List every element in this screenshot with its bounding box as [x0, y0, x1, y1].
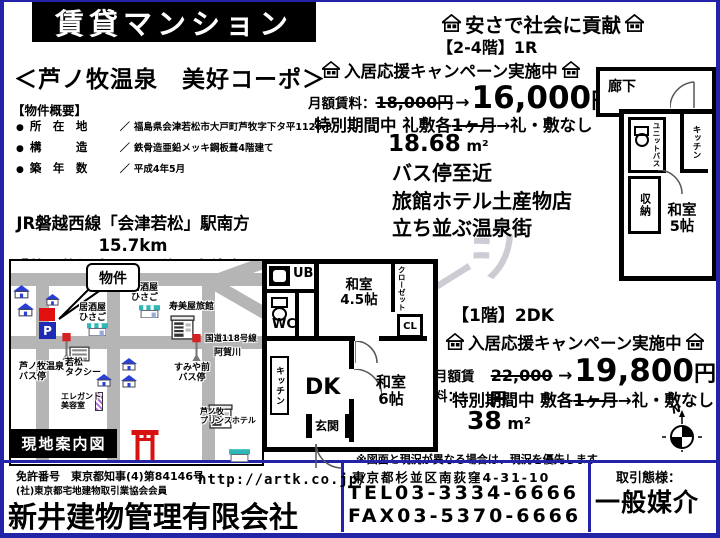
overview-value: 平成4年5月: [134, 161, 185, 175]
area-value: 18.68: [388, 131, 461, 157]
unit-bath-label: ユニットバス: [651, 122, 662, 167]
bus-stop-icon: [61, 333, 72, 360]
storage-label: 収納: [637, 193, 653, 217]
parking-sign: P: [39, 322, 56, 339]
rental-flyer: ージ 賃貸マンション ＜芦ノ牧温泉 美好コーポ＞ 【物件概要】 ● 所 在 地 …: [0, 0, 720, 538]
map-label-route118: 国道118号線: [205, 335, 257, 344]
wall: [379, 336, 427, 341]
company-name: 新井建物管理有限会社: [8, 494, 298, 536]
wall: [267, 289, 314, 293]
overview-label: 構 造: [30, 139, 116, 155]
property-callout: 物件: [86, 263, 140, 292]
house-icon: [446, 333, 464, 351]
unit-2dk-floor: 【1階】2DK: [452, 301, 554, 326]
fax-number: FAX03-5370-6666: [348, 505, 581, 527]
room-unit-bath: ユニットバス: [628, 117, 666, 173]
map-label-busstop-ashinomaki: 芦ノ牧温泉 バス停: [19, 363, 64, 383]
house-icon: [121, 375, 137, 388]
location-map: 物件 P 居酒屋 ひさご 居酒屋 ひさご 寿美屋旅館 国道118号線 阿賀川 す…: [9, 259, 264, 466]
arrow: →: [455, 93, 469, 113]
rent-new: 19,800: [574, 353, 694, 389]
map-caption: 現地案内図: [11, 429, 117, 458]
shop-icon: [229, 449, 250, 462]
overview-value: 福島県会津若松市大戸町芦牧字下タ平1126-3: [134, 119, 333, 133]
property-name: ＜芦ノ牧温泉 美好コーポ＞: [14, 60, 326, 94]
house-icon: [121, 358, 137, 371]
bullet-icon: ●: [16, 165, 24, 175]
map-label-ryokan: 寿美屋旅館: [169, 303, 214, 313]
map-label-river: 阿賀川: [214, 349, 241, 359]
overview-value: 鉄骨造亜鉛メッキ鋼板葺4階建て: [134, 140, 274, 154]
area-unit: m²: [507, 414, 531, 433]
wall: [391, 262, 395, 312]
overview-row-built: ● 築 年 数 ／ 平成4年5月: [16, 160, 185, 176]
door-arc: [658, 170, 684, 196]
campaign-text: 入居応援キャンペーン実施中: [468, 330, 682, 354]
wall: [267, 336, 355, 341]
access-line1: JR磐越西線「会津若松」駅南方15.7km: [4, 213, 262, 257]
overview-separator: ／: [120, 160, 130, 175]
area-1r: 18.68 m²: [388, 131, 489, 157]
bullet-icon: ●: [16, 144, 24, 154]
shop-icon: [139, 305, 160, 318]
campaign-2dk-row: 入居応援キャンペーン実施中: [446, 330, 704, 354]
room-genkan: 玄関: [314, 420, 340, 433]
overview-label: 所 在 地: [30, 118, 116, 134]
overview-separator: ／: [120, 118, 130, 133]
house-icon: [442, 14, 461, 33]
phone-number: TEL03-3334-6666: [348, 482, 579, 504]
rent-label: 月額賃料：: [308, 92, 376, 112]
kitchen-label: キッチン: [690, 125, 702, 159]
torii-gate-icon: [131, 430, 159, 460]
rent-old: 18,000円: [376, 89, 454, 113]
room-wc: WC: [272, 318, 296, 332]
house-icon: [322, 61, 340, 79]
room-washitsu-5: 和室 5帖: [658, 204, 706, 236]
campaign-text: 入居応援キャンペーン実施中: [344, 58, 558, 82]
bullet-icon: ●: [16, 123, 24, 133]
wall: [345, 414, 351, 438]
license-number: 免許番号 東京都知事(4)第84146号: [16, 468, 204, 484]
shop-icon: [87, 323, 108, 336]
room-corridor: 廊下: [608, 80, 636, 95]
door-arc: [355, 341, 379, 365]
room-ub: UB: [293, 267, 313, 281]
company-url: http://artk.co.jp/: [198, 472, 368, 488]
house-icon: [686, 333, 704, 351]
door-arc: [314, 444, 344, 470]
map-label-busstop-sumiya: すみや前 バス停: [174, 364, 210, 384]
bus-stop-icon: [191, 334, 202, 361]
wall: [295, 293, 299, 340]
wall: [314, 262, 319, 340]
map-label-salon: エレガント 美容室: [61, 393, 101, 411]
toilet-icon: [635, 133, 649, 147]
map-label-hotel: 芦ノ牧 プリンスホテル: [200, 408, 256, 426]
house-icon: [625, 14, 644, 33]
room-kitchen: キッチン: [270, 356, 289, 415]
footer-vertical-divider: [588, 460, 591, 532]
map-label-izakaya: 居酒屋 ひさご: [79, 304, 106, 324]
feature-line: 立ち並ぶ温泉街: [392, 215, 572, 243]
room-kitchen-1r: キッチン: [680, 114, 708, 173]
kitchen-label: キッチン: [273, 366, 286, 406]
floorplan-1r: 廊下 ユニットバス キッチン 収納 和室 5帖: [562, 64, 720, 282]
map-label-taxi: 若松 タクシー: [65, 359, 101, 379]
feature-line: バス停至近: [392, 160, 572, 188]
compass-north-icon: N: [662, 402, 702, 452]
footer-vertical-divider: [341, 460, 344, 532]
special-struck: 1ヶ月: [573, 391, 617, 410]
area-2dk: 38 m²: [467, 406, 531, 435]
room-cl: CL: [397, 314, 423, 338]
overview-row-location: ● 所 在 地 ／ 福島県会津若松市大戸町芦牧字下タ平1126-3: [16, 118, 332, 134]
house-icon: [17, 303, 34, 317]
arrow: →: [558, 366, 572, 386]
overview-heading: 【物件概要】: [12, 100, 87, 119]
room-dk: DK: [305, 376, 340, 400]
overview-label: 築 年 数: [30, 160, 116, 176]
door-arc: [670, 80, 696, 108]
unit-1r-floor: 【2-4階】1R: [437, 34, 537, 58]
features-1r: バス停至近 旅館ホテル土産物店 立ち並ぶ温泉街: [392, 160, 572, 243]
house-icon: [13, 285, 30, 299]
deal-type: 一般媒介: [595, 483, 699, 519]
room-washitsu-45: 和室 4.5帖: [325, 278, 393, 308]
overview-separator: ／: [120, 139, 130, 154]
feature-line: 旅館ホテル土産物店: [392, 188, 572, 216]
area-unit: m²: [466, 137, 488, 155]
wall: [306, 414, 312, 438]
room-closet: クローゼット: [397, 266, 405, 311]
overview-row-structure: ● 構 造 ／ 鉄骨造亜鉛メッキ鋼板葺4階建て: [16, 139, 273, 155]
room-washitsu-6: 和室 6帖: [361, 374, 421, 407]
title-banner: 賃貸マンション: [32, 2, 316, 42]
room-storage: 収納: [628, 176, 661, 234]
bathtub-icon: [269, 266, 290, 286]
rent-new-unit: 円: [694, 356, 716, 388]
floorplan-2dk: UB WC 和室 4.5帖 クローゼット CL キッチン DK 和室 6帖: [261, 256, 441, 470]
area-value: 38: [467, 406, 502, 435]
campaign-1r-row: 入居応援キャンペーン実施中: [322, 58, 580, 82]
wall: [349, 341, 354, 369]
